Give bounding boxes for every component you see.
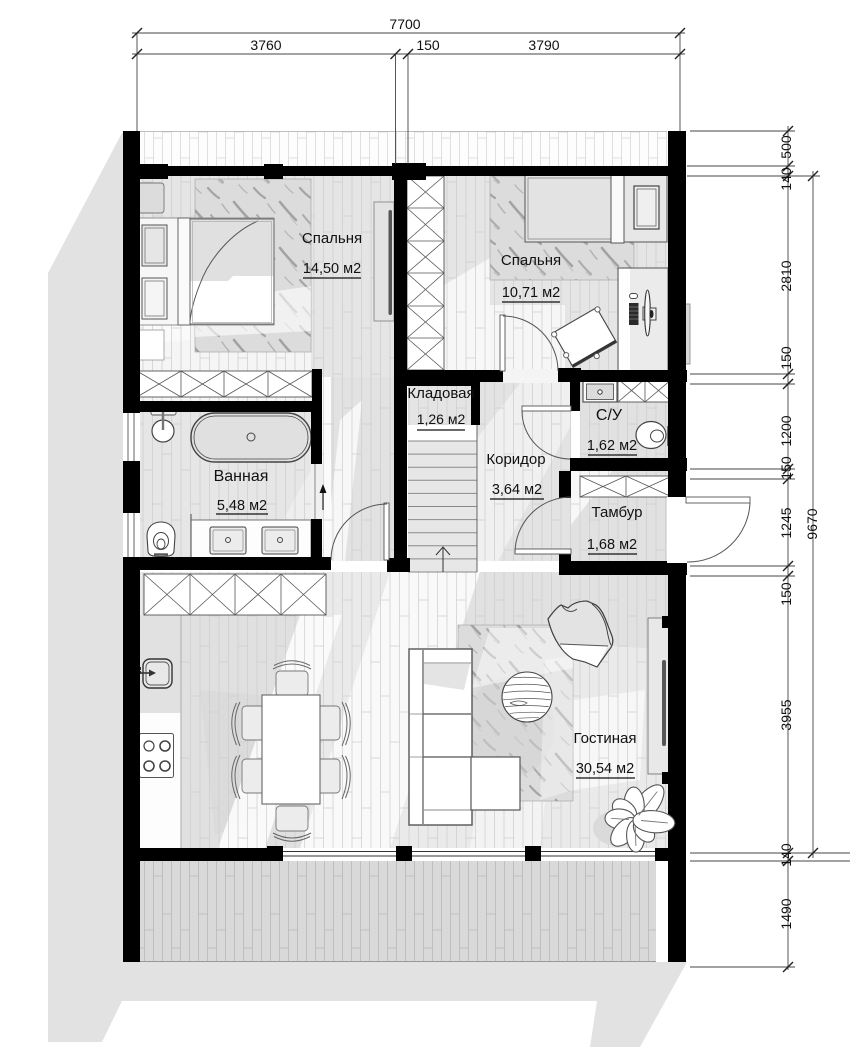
svg-text:5,48 м2: 5,48 м2 xyxy=(217,498,267,514)
svg-text:Спальня: Спальня xyxy=(501,252,561,269)
svg-text:150: 150 xyxy=(416,37,440,53)
svg-text:7700: 7700 xyxy=(389,16,420,32)
svg-text:3955: 3955 xyxy=(778,699,794,730)
svg-text:150: 150 xyxy=(778,456,794,480)
svg-text:Коридор: Коридор xyxy=(486,451,545,468)
svg-text:1245: 1245 xyxy=(778,507,794,538)
svg-text:3,64 м2: 3,64 м2 xyxy=(492,482,542,498)
svg-text:1490: 1490 xyxy=(778,898,794,929)
svg-text:14,50 м2: 14,50 м2 xyxy=(303,261,361,277)
svg-text:3760: 3760 xyxy=(250,37,281,53)
svg-text:140: 140 xyxy=(778,167,794,191)
svg-text:140: 140 xyxy=(778,843,794,867)
svg-text:9670: 9670 xyxy=(804,508,820,539)
svg-text:С/У: С/У xyxy=(596,407,623,424)
svg-text:10,71 м2: 10,71 м2 xyxy=(502,285,560,301)
svg-text:Кладовая: Кладовая xyxy=(407,385,474,402)
svg-text:Спальня: Спальня xyxy=(302,230,362,247)
svg-text:Тамбур: Тамбур xyxy=(592,504,643,521)
svg-text:150: 150 xyxy=(778,346,794,370)
svg-text:1,62 м2: 1,62 м2 xyxy=(587,438,637,454)
svg-text:1,26 м2: 1,26 м2 xyxy=(417,411,466,427)
svg-text:1200: 1200 xyxy=(778,415,794,446)
svg-text:150: 150 xyxy=(778,582,794,606)
svg-text:500: 500 xyxy=(778,135,794,159)
svg-text:Гостиная: Гостиная xyxy=(574,730,637,747)
svg-text:30,54 м2: 30,54 м2 xyxy=(576,761,634,777)
svg-text:2810: 2810 xyxy=(778,260,794,291)
svg-text:1,68 м2: 1,68 м2 xyxy=(587,537,637,553)
svg-text:3790: 3790 xyxy=(528,37,559,53)
svg-text:Ванная: Ванная xyxy=(214,468,269,485)
